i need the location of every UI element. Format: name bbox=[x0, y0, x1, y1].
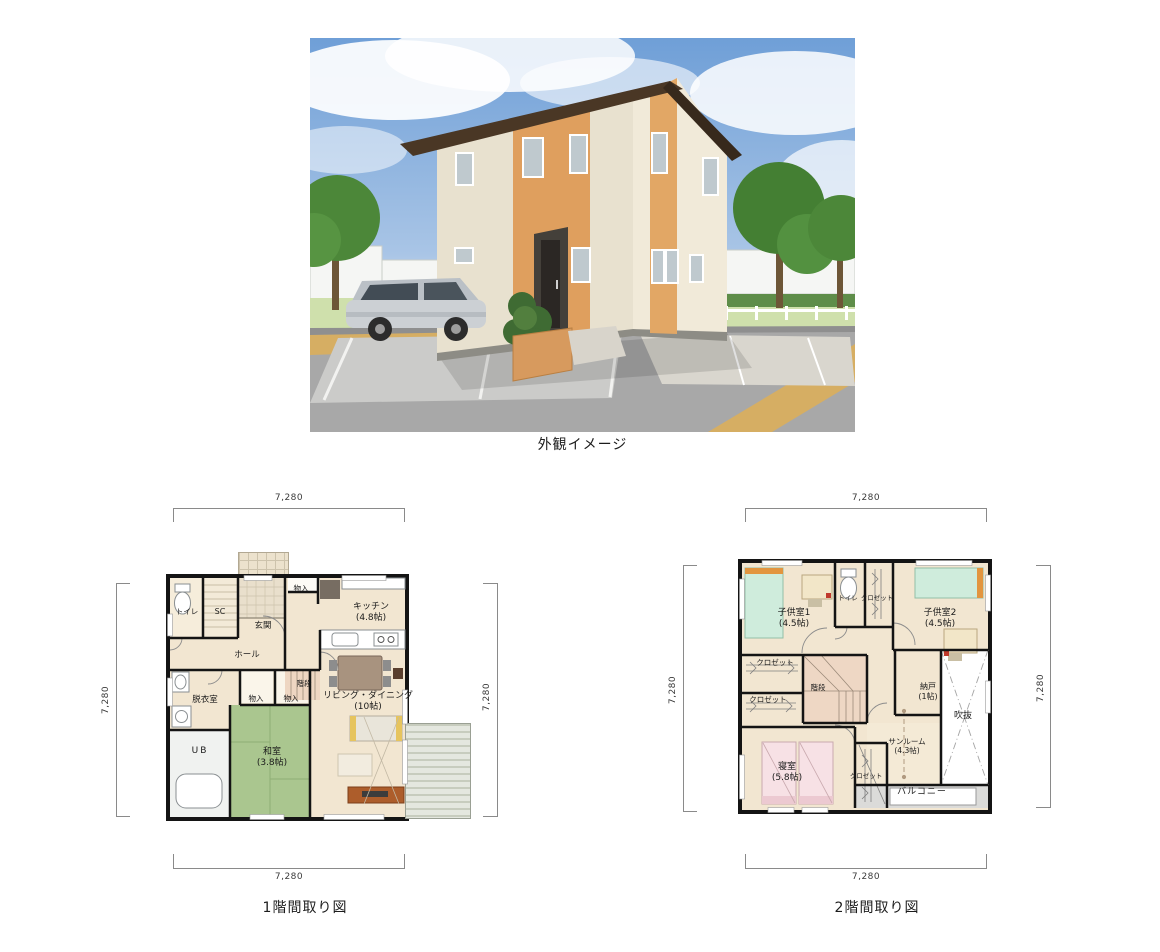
chair-icon bbox=[393, 668, 403, 679]
dim-tick bbox=[173, 508, 174, 522]
dim-1f-right: 7,280 bbox=[482, 677, 494, 717]
dim-tick bbox=[683, 565, 697, 566]
dim-tick bbox=[1036, 565, 1050, 566]
room-label-balcony: バルコニー bbox=[882, 787, 962, 798]
dim-line bbox=[745, 868, 987, 869]
door-handle bbox=[556, 280, 558, 289]
room-label-bedroom: 寝室 (5.8帖) bbox=[752, 762, 822, 785]
dim-tick bbox=[483, 816, 497, 817]
room-label-nando: 納戸 (1帖) bbox=[903, 682, 953, 702]
dim-tick bbox=[116, 816, 130, 817]
dim-line bbox=[745, 508, 987, 509]
toilet-tank-icon bbox=[841, 569, 856, 577]
room-label-sunroom: サンルーム (4.3帖) bbox=[877, 737, 937, 756]
exterior-caption: 外観イメージ bbox=[310, 434, 855, 454]
room-label-living-dining: リビング・ダイニング (10帖) bbox=[308, 691, 428, 714]
dim-tick bbox=[1036, 807, 1050, 808]
plan-1f-caption: 1階間取り図 bbox=[180, 897, 430, 917]
dim-tick bbox=[745, 508, 746, 522]
dim-1f-left: 7,280 bbox=[101, 680, 113, 720]
dim-line bbox=[1050, 565, 1051, 808]
dim-tick bbox=[683, 811, 697, 812]
rug-icon bbox=[338, 754, 372, 776]
room-genkan bbox=[238, 578, 285, 618]
dim-tick bbox=[745, 854, 746, 868]
bathtub-icon bbox=[176, 774, 222, 808]
dim-1f-top: 7,280 bbox=[173, 493, 405, 503]
room-label-stairs-1f: 階段 bbox=[288, 679, 320, 688]
room-label-void: 吹抜 bbox=[941, 711, 985, 722]
dining-table-icon bbox=[338, 656, 382, 690]
dim-tick bbox=[173, 854, 174, 868]
dim-tick bbox=[116, 583, 130, 584]
dim-line bbox=[116, 583, 117, 817]
exterior-image bbox=[310, 38, 855, 432]
hedge bbox=[715, 294, 855, 307]
dim-tick bbox=[483, 583, 497, 584]
room-label-closet-l2: クロゼット bbox=[740, 695, 796, 704]
house-rendering-illustration bbox=[310, 38, 855, 432]
room-label-child1: 子供室1 (4.5帖) bbox=[754, 608, 834, 631]
toilet-tank-icon bbox=[175, 584, 190, 592]
dim-2f-right: 7,280 bbox=[1036, 668, 1048, 708]
room-label-hall: ホール bbox=[222, 650, 272, 661]
wood-deck bbox=[405, 723, 471, 819]
living-furniture bbox=[338, 716, 404, 804]
plan-2f-caption: 2階間取り図 bbox=[752, 897, 1002, 917]
room-label-storage-top: 物入 bbox=[286, 584, 316, 593]
room-label-closet-l1: クロゼット bbox=[745, 658, 805, 667]
room-label-child2: 子供室2 (4.5帖) bbox=[900, 608, 980, 631]
room-label-closet-top: クロゼット bbox=[855, 594, 899, 602]
property-sheet: { "exterior": { "caption": "外観イメージ", "pa… bbox=[0, 0, 1160, 952]
dining-set bbox=[329, 656, 403, 690]
room-label-toilet-1f: トイレ bbox=[168, 607, 206, 616]
dim-2f-left: 7,280 bbox=[668, 670, 680, 710]
room-label-storage-a: 物入 bbox=[241, 694, 271, 703]
dim-2f-top: 7,280 bbox=[745, 493, 987, 503]
room-label-genkan: 玄関 bbox=[243, 621, 283, 632]
dim-tick bbox=[404, 508, 405, 522]
dim-line bbox=[173, 868, 405, 869]
room-label-closet-bottom: クロゼット bbox=[845, 772, 887, 780]
sink-icon bbox=[332, 633, 358, 646]
dim-2f-bottom: 7,280 bbox=[745, 872, 987, 882]
dim-1f-bottom: 7,280 bbox=[173, 872, 405, 882]
room-label-dressing: 脱衣室 bbox=[178, 695, 232, 706]
dim-tick bbox=[986, 508, 987, 522]
room-label-stairs-2f: 階段 bbox=[800, 683, 836, 692]
dim-line bbox=[497, 583, 498, 817]
brick-stripe-side bbox=[650, 78, 677, 334]
fridge-icon bbox=[320, 580, 340, 599]
dim-line bbox=[683, 565, 684, 812]
room-label-washitsu: 和室 (3.8帖) bbox=[239, 747, 305, 770]
dim-tick bbox=[986, 854, 987, 868]
dim-line bbox=[173, 508, 405, 509]
dim-tick bbox=[404, 854, 405, 868]
room-label-unit-bath: UB bbox=[185, 746, 215, 757]
bed-icon-child2 bbox=[915, 568, 983, 598]
room-label-shoe-closet: SC bbox=[205, 607, 235, 617]
room-label-kitchen: キッチン (4.8帖) bbox=[331, 602, 411, 625]
room-label-storage-b: 物入 bbox=[276, 694, 306, 703]
